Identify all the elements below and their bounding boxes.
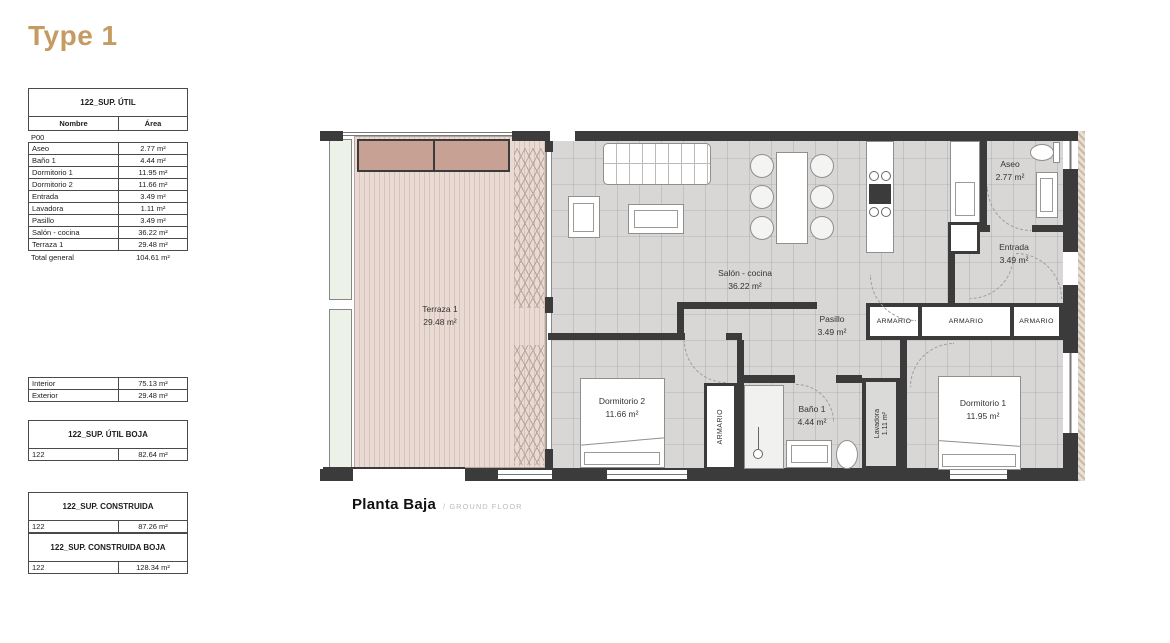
table-row: Exterior29.48 m² — [28, 389, 188, 402]
toilet-icon — [836, 440, 858, 469]
row-name: Pasillo — [29, 215, 119, 226]
sofa-icon — [603, 143, 711, 185]
folding-door-icon — [514, 345, 544, 465]
room-name: Dormitorio 1 — [938, 397, 1028, 410]
room-area: 4.44 m² — [774, 416, 850, 429]
util-boja-table: 122_SUP. ÚTIL BOJA 12282.64 m² — [28, 420, 188, 461]
room-area: 11.95 m² — [938, 410, 1028, 423]
wall-insulation — [1078, 131, 1085, 481]
wall — [320, 131, 343, 141]
room-area: 3.49 m² — [974, 254, 1054, 267]
row-area: 3.49 m² — [119, 215, 187, 226]
table-title: 122_SUP. CONSTRUIDA — [28, 492, 188, 521]
col-area: Área — [119, 117, 187, 130]
room-area: 2.77 m² — [975, 171, 1045, 184]
chair-icon — [810, 154, 834, 178]
sup-util-table: 122_SUP. ÚTIL Nombre Área P00 Aseo2.77 m… — [28, 88, 188, 264]
room-area: 1.11 m² — [882, 412, 889, 435]
chair-icon — [810, 185, 834, 209]
toilet-tank-icon — [1053, 142, 1060, 163]
pergola — [357, 139, 510, 172]
room-name: Baño 1 — [774, 403, 850, 416]
wall-corridor — [677, 302, 684, 333]
wall-corridor — [677, 302, 817, 309]
row-name: Baño 1 — [29, 155, 119, 166]
room-name: Salón - cocina — [700, 267, 790, 280]
table-row: Interior75.13 m² — [28, 377, 188, 390]
room-area: 11.66 m² — [577, 408, 667, 421]
terrace-railing — [342, 132, 513, 136]
room-label-salon: Salón - cocina 36.22 m² — [700, 267, 790, 293]
room-label-dormitorio1: Dormitorio 1 11.95 m² — [938, 397, 1028, 423]
interior-exterior-table: Interior75.13 m² Exterior29.48 m² — [28, 378, 188, 402]
room-name: Lavadora — [874, 409, 881, 438]
stove-burner-icon — [881, 171, 891, 181]
wall-bedroom1 — [900, 340, 907, 470]
window — [498, 470, 552, 479]
room-label-bano: Baño 1 4.44 m² — [774, 403, 850, 429]
table-title: 122_SUP. CONSTRUIDA BOJA — [28, 533, 188, 562]
table-total-row: Total general104.61 m² — [28, 251, 188, 264]
chair-icon — [750, 216, 774, 240]
col-nombre: Nombre — [29, 117, 119, 130]
chair-icon — [810, 216, 834, 240]
room-name: Dormitorio 2 — [577, 395, 667, 408]
row-name: 122 — [29, 521, 119, 532]
table-title: 122_SUP. ÚTIL — [28, 88, 188, 117]
row-area: 82.64 m² — [119, 449, 187, 460]
wall-bathroom — [737, 340, 744, 470]
row-area: 75.13 m² — [119, 378, 187, 389]
row-name: 122 — [29, 449, 119, 460]
row-area: 87.26 m² — [119, 521, 187, 532]
wall-bathroom-top — [836, 375, 862, 383]
window — [950, 470, 1007, 479]
table-row: 122128.34 m² — [28, 561, 188, 574]
closet-armario-vertical: ARMARIO — [704, 383, 737, 470]
page-title: Type 1 — [28, 20, 118, 52]
room-name: Pasillo — [800, 313, 864, 326]
row-area: 4.44 m² — [119, 155, 187, 166]
closet-vertical-label: ARMARIO — [717, 409, 724, 444]
row-name: 122 — [29, 562, 119, 573]
row-area: 3.49 m² — [119, 191, 187, 202]
row-area: 2.77 m² — [119, 143, 187, 154]
wall-entrada — [948, 254, 955, 303]
shower-head-icon — [758, 427, 759, 449]
total-label: Total general — [28, 253, 118, 262]
shower-drain-icon — [753, 449, 763, 459]
table-row: Terraza 129.48 m² — [28, 238, 188, 251]
room-label-terraza: Terraza 1 29.48 m² — [395, 303, 485, 329]
wall-bedroom2 — [548, 333, 685, 340]
row-name: Terraza 1 — [29, 239, 119, 250]
vanity-sink-icon — [786, 440, 832, 468]
mullion — [545, 297, 553, 313]
room-area: 29.48 m² — [395, 316, 485, 329]
table-title: 122_SUP. ÚTIL BOJA — [28, 420, 188, 449]
table-row: Dormitorio 111.95 m² — [28, 166, 188, 179]
table-row: Pasillo3.49 m² — [28, 214, 188, 227]
room-label-pasillo: Pasillo 3.49 m² — [800, 313, 864, 339]
table-row: 12287.26 m² — [28, 520, 188, 533]
window — [1063, 141, 1078, 169]
closet-armario: ARMARIO — [1014, 307, 1059, 336]
pillow-icon — [942, 454, 1016, 467]
row-name: Interior — [29, 378, 119, 389]
room-label-lavadora: Lavadora 1.11 m² — [866, 382, 896, 466]
table-row: Salón - cocina36.22 m² — [28, 226, 188, 239]
row-area: 11.95 m² — [119, 167, 187, 178]
floor-plan: ARMARIO ARMARIO ARMARIO ARMARIO Lavadora… — [320, 127, 1086, 483]
row-area: 36.22 m² — [119, 227, 187, 238]
pillow-icon — [584, 452, 660, 465]
row-name: Dormitorio 1 — [29, 167, 119, 178]
wall-top — [512, 131, 1078, 141]
row-area: 29.48 m² — [119, 239, 187, 250]
stove-burner-icon — [869, 207, 879, 217]
table-row: Entrada3.49 m² — [28, 190, 188, 203]
room-label-entrada: Entrada 3.49 m² — [974, 241, 1054, 267]
planter-box — [329, 309, 352, 470]
room-label-dormitorio2: Dormitorio 2 11.66 m² — [577, 395, 667, 421]
wall-aseo-bottom — [1032, 225, 1063, 232]
mullion — [545, 449, 553, 470]
window — [607, 470, 687, 479]
row-area: 11.66 m² — [119, 179, 187, 190]
caption-title: Planta Baja — [352, 496, 436, 513]
wall — [320, 469, 353, 481]
page: Type 1 122_SUP. ÚTIL Nombre Área P00 Ase… — [0, 0, 1170, 643]
row-name: Lavadora — [29, 203, 119, 214]
caption-subtitle: / GROUND FLOOR — [443, 502, 522, 511]
window — [550, 131, 575, 141]
row-name: Aseo — [29, 143, 119, 154]
table-row: Baño 14.44 m² — [28, 154, 188, 167]
planter-box — [329, 139, 352, 300]
chair-icon — [750, 185, 774, 209]
row-area: 29.48 m² — [119, 390, 187, 401]
room-area: 36.22 m² — [700, 280, 790, 293]
folding-door-icon — [514, 148, 544, 308]
row-name: Dormitorio 2 — [29, 179, 119, 190]
coffee-table-icon — [628, 204, 684, 234]
table-row: Aseo2.77 m² — [28, 142, 188, 155]
stove-burner-icon — [881, 207, 891, 217]
total-area: 104.61 m² — [118, 253, 188, 262]
sink-icon — [955, 182, 975, 216]
table-row: 12282.64 m² — [28, 448, 188, 461]
wall-aseo-bottom — [980, 225, 990, 232]
room-name: Aseo — [975, 158, 1045, 171]
table-row: Dormitorio 211.66 m² — [28, 178, 188, 191]
table-header-row: Nombre Área — [28, 116, 188, 131]
entry-door-opening — [1063, 252, 1078, 285]
row-name: Entrada — [29, 191, 119, 202]
wall-aseo — [980, 141, 987, 232]
chair-icon — [750, 154, 774, 178]
table-row: Lavadora1.11 m² — [28, 202, 188, 215]
closet-armario: ARMARIO — [922, 307, 1010, 336]
stove-burner-icon — [869, 171, 879, 181]
armchair-icon — [568, 196, 600, 238]
stove-icon — [869, 184, 891, 204]
room-name: Entrada — [974, 241, 1054, 254]
row-name: Salón - cocina — [29, 227, 119, 238]
wall-bathroom-top — [744, 375, 795, 383]
row-area: 128.34 m² — [119, 562, 187, 573]
window — [1063, 353, 1078, 433]
room-name: Terraza 1 — [395, 303, 485, 316]
row-name: Exterior — [29, 390, 119, 401]
row-area: 1.11 m² — [119, 203, 187, 214]
plan-caption: Planta Baja / GROUND FLOOR — [352, 496, 523, 513]
construida-table: 122_SUP. CONSTRUIDA 12287.26 m² 122_SUP.… — [28, 492, 188, 574]
room-label-aseo: Aseo 2.77 m² — [975, 158, 1045, 184]
wall-jamb — [726, 333, 742, 340]
room-area: 3.49 m² — [800, 326, 864, 339]
laundry-closet: Lavadora 1.11 m² — [862, 378, 900, 470]
dining-table-icon — [776, 152, 808, 244]
